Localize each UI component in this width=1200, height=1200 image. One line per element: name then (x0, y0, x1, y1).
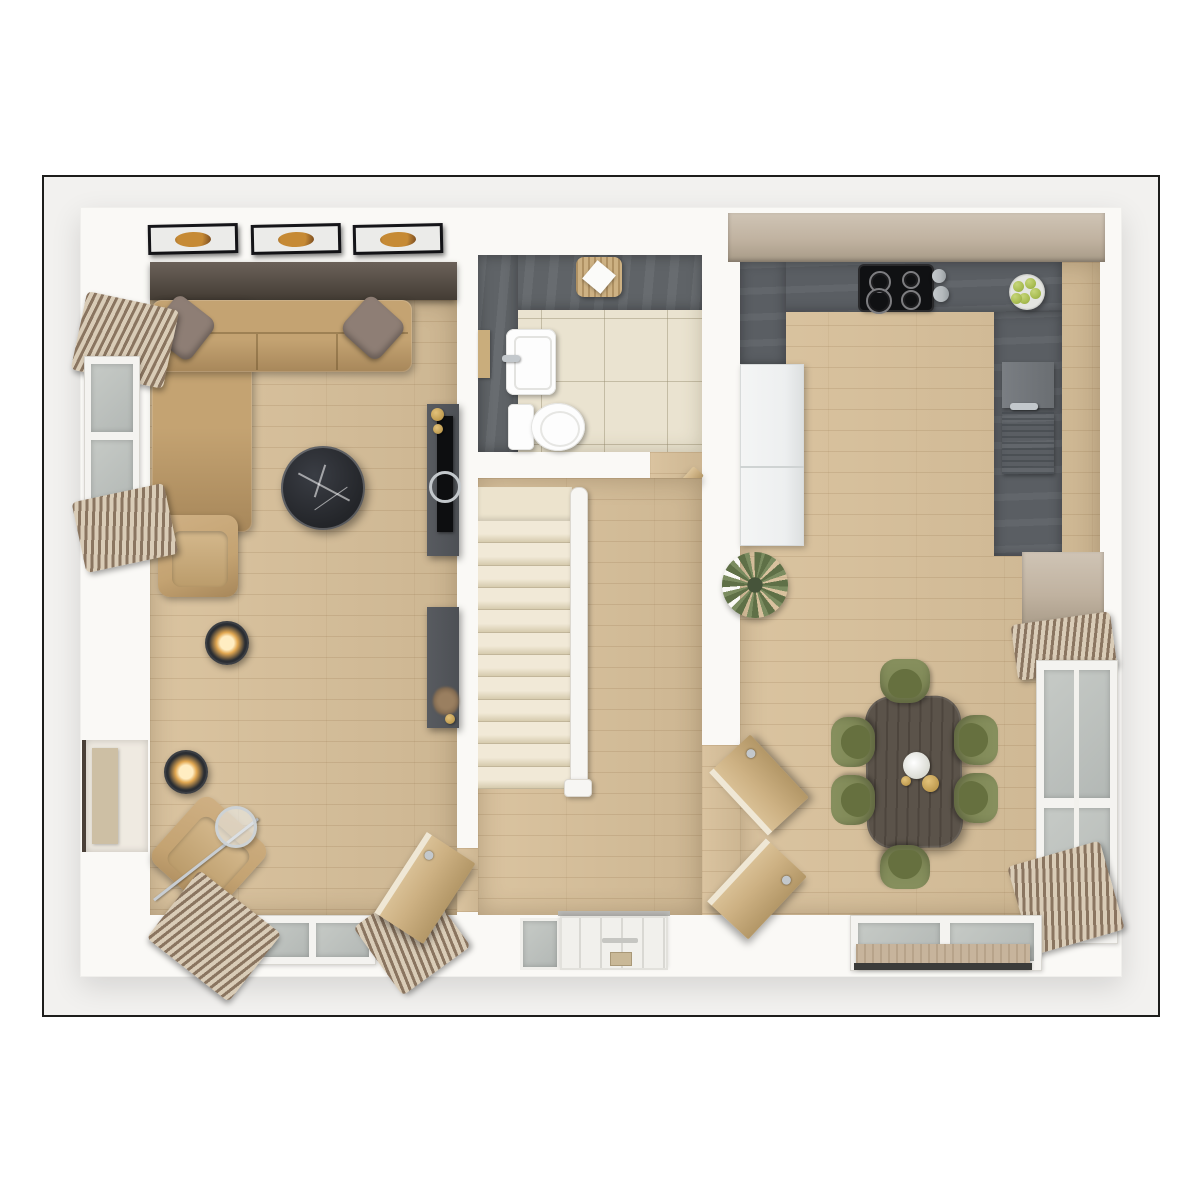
newel-post (564, 779, 592, 797)
stair-step (478, 700, 570, 722)
door-handle (423, 849, 435, 861)
sofa-cushion-seam (256, 334, 258, 370)
art-mat (151, 226, 235, 252)
armchair-cushion (172, 531, 228, 587)
pampas-plant (433, 686, 459, 716)
canister (933, 286, 949, 302)
arc-lamp-shade (215, 806, 257, 848)
sink-basin (514, 336, 552, 390)
sink-tap (502, 355, 520, 362)
fridge-freezer (740, 364, 804, 546)
stair-step (478, 610, 570, 632)
bathroom-sink (506, 329, 556, 395)
art-print (175, 231, 211, 247)
stair-step (478, 566, 570, 588)
stair-step (478, 655, 570, 677)
fridge-divider (740, 466, 804, 468)
dining-chair (880, 659, 930, 703)
decor-candle (433, 424, 443, 434)
kitchen-sink-cabinet (1002, 362, 1054, 408)
towel (582, 260, 616, 294)
stair-step (478, 677, 570, 699)
apple (1011, 293, 1022, 304)
art-print (380, 231, 416, 247)
apple (1030, 288, 1041, 299)
front-door-handle (602, 938, 638, 943)
speaker-ring (429, 471, 461, 503)
towel-basket (576, 257, 622, 297)
stair-step (478, 588, 570, 610)
art-mat (254, 226, 338, 252)
dining-chair (831, 775, 875, 825)
door-handle (780, 874, 793, 887)
floor-plan-render (0, 0, 1200, 1200)
canister (932, 269, 946, 283)
dining-chair (880, 845, 930, 889)
marble-vein (298, 473, 350, 502)
door-mat-edge (854, 963, 1032, 970)
hob-burner (901, 290, 921, 310)
dining-chair (954, 715, 998, 765)
stairs-steps (478, 521, 570, 789)
letter-plate (610, 952, 632, 966)
induction-hob (860, 266, 932, 310)
living-accent-wall (150, 262, 457, 300)
stairs-handrail (570, 487, 588, 791)
kitchen-counter-left (740, 262, 786, 366)
kitchen-wall-cabinets (728, 213, 1105, 262)
console-panel (92, 748, 118, 844)
wall-art-frame (353, 223, 444, 255)
floor-lamp (164, 750, 208, 794)
stair-step (478, 722, 570, 744)
wall-art-frame (148, 223, 239, 255)
table-candle (922, 775, 939, 792)
art-mat (356, 226, 440, 252)
decor-candle (431, 408, 444, 421)
bath-shelf (478, 330, 490, 378)
hob-burner (866, 288, 892, 314)
decor-vase (445, 714, 455, 724)
table-coaster (901, 776, 911, 786)
wall-console-niche (82, 740, 148, 852)
dining-chair (954, 773, 998, 823)
stairs-landing (478, 487, 572, 521)
fruit-bowl (1009, 274, 1045, 310)
entry-sidelight (520, 918, 560, 970)
wall-art-frame (251, 223, 342, 255)
sink-faucet (1010, 403, 1038, 410)
sink-drainer (1002, 412, 1054, 474)
front-door (560, 916, 668, 970)
door-handle (745, 747, 758, 760)
stair-step (478, 744, 570, 766)
apple (1013, 281, 1024, 292)
coffee-table (281, 446, 365, 530)
toilet-seat-line (540, 411, 580, 447)
stair-step (478, 633, 570, 655)
sofa-cushion-seam (336, 334, 338, 370)
hob-burner (902, 271, 920, 289)
stair-step (478, 521, 570, 543)
floor-lamp (205, 621, 249, 665)
toilet-bowl (531, 403, 585, 451)
dining-chair (831, 717, 875, 767)
stair-step (478, 543, 570, 565)
art-print (278, 231, 314, 247)
window-glass (91, 364, 133, 432)
stair-step (478, 767, 570, 789)
